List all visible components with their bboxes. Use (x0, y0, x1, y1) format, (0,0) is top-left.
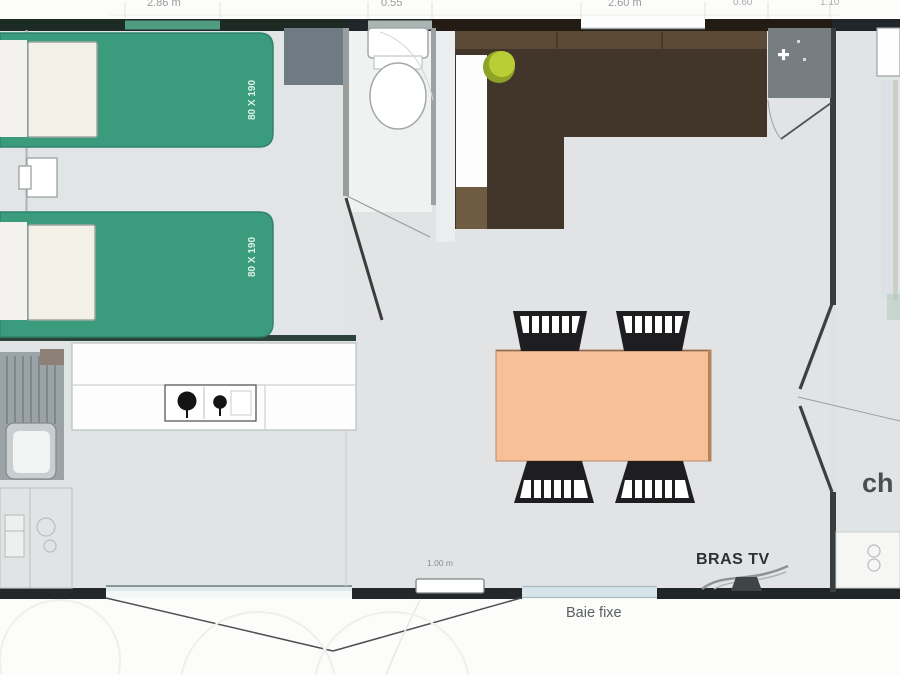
svg-text:ch: ch (862, 468, 894, 498)
svg-text:2.86 m: 2.86 m (147, 0, 181, 9)
svg-text:0.55: 0.55 (381, 0, 402, 9)
svg-text:1.10: 1.10 (820, 0, 840, 8)
svg-text:80 X 190: 80 X 190 (247, 80, 258, 120)
svg-text:Baie fixe: Baie fixe (566, 605, 622, 621)
svg-text:1.00 m: 1.00 m (427, 558, 453, 568)
svg-text:2.60 m: 2.60 m (608, 0, 642, 9)
svg-text:BRAS TV: BRAS TV (696, 551, 770, 568)
svg-text:0.60: 0.60 (733, 0, 753, 8)
svg-text:80 X 190: 80 X 190 (247, 237, 258, 277)
